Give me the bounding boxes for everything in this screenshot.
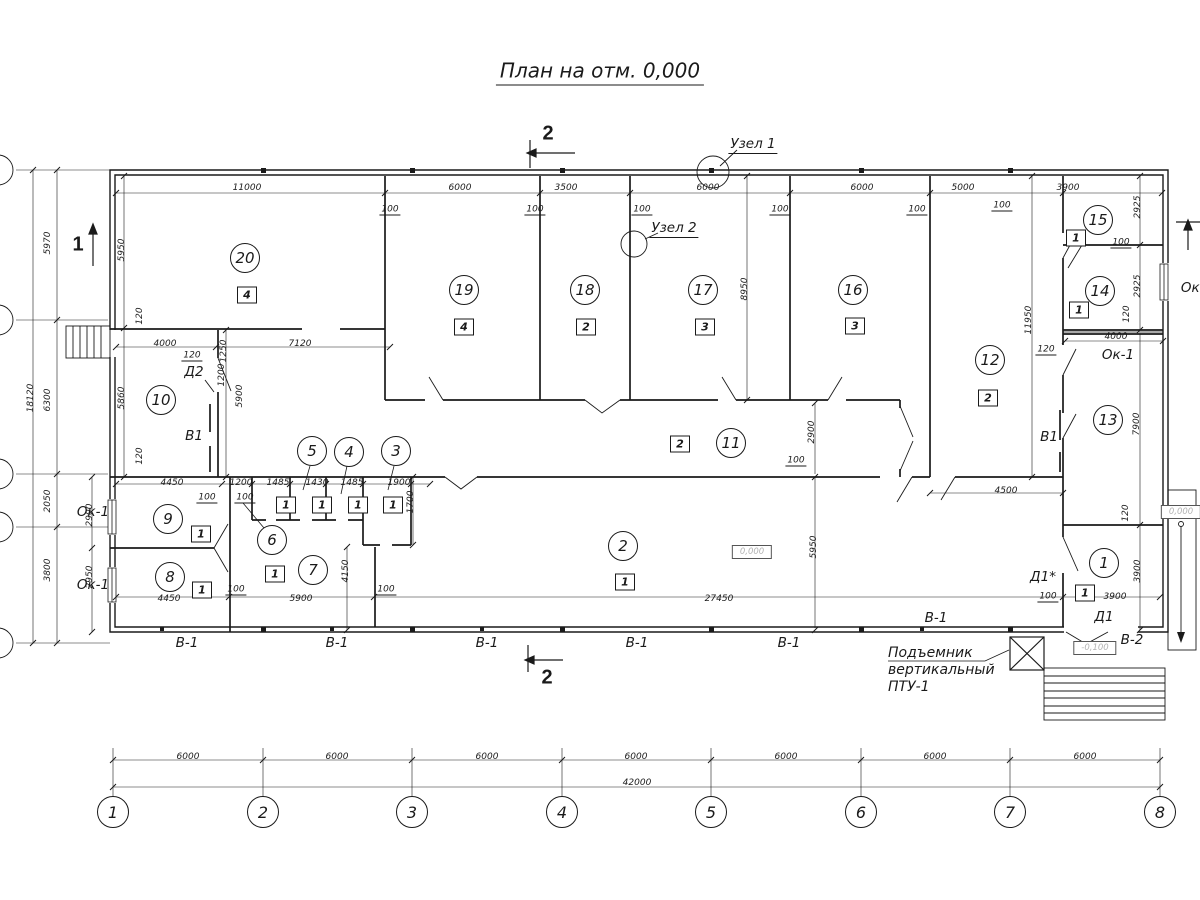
- window-label-ok1: Ок-1: [77, 504, 109, 520]
- dimension-label: 2925: [1133, 196, 1143, 219]
- axis-bubble-6: 6: [845, 796, 877, 828]
- room-type-tag: 1: [276, 497, 296, 514]
- dimension-label: 120: [1121, 504, 1131, 521]
- dimension-label: 2925: [1133, 275, 1143, 298]
- dimension-label: 3900: [1057, 183, 1080, 193]
- dimension-label: 6000: [177, 752, 200, 762]
- room-number-11: 11: [716, 428, 746, 458]
- elevation-mark: 0,000: [732, 545, 772, 559]
- dimension-label: 100: [785, 456, 806, 467]
- dimension-label: 120: [1122, 305, 1132, 322]
- dimension-label: 120: [181, 351, 202, 362]
- dimension-label: 100: [991, 201, 1012, 212]
- section-mark-label: 1: [72, 234, 83, 257]
- window-label-ok1: Ок-1: [1181, 280, 1200, 296]
- axis-bubble-1: 1: [97, 796, 129, 828]
- elevation-mark: 0,000: [1161, 505, 1200, 519]
- dimension-label: 2050: [43, 490, 53, 513]
- room-type-tag: 1: [191, 526, 211, 543]
- room-type-tag: 1: [383, 497, 403, 514]
- dimension-label: 11950: [1024, 306, 1034, 335]
- dimension-label: 6000: [924, 752, 947, 762]
- room-number-12: 12: [975, 345, 1005, 375]
- axis-bubble-7: 7: [994, 796, 1026, 828]
- dimension-label: 11000: [233, 183, 262, 193]
- dimension-label: 5900: [235, 385, 245, 408]
- dimension-label: 100: [524, 205, 545, 216]
- dimension-label: 1700: [406, 491, 416, 514]
- room-type-tag: 4: [237, 287, 257, 304]
- room-type-tag: 1: [265, 566, 285, 583]
- room-number-4: 4: [334, 437, 364, 467]
- dimension-label: 5000: [952, 183, 975, 193]
- axis-bubble-8: 8: [1144, 796, 1176, 828]
- dimension-label: 6000: [697, 183, 720, 193]
- lift-note: Подъемник вертикальный ПТУ-1: [888, 645, 995, 696]
- panel-label-v1: В-1: [925, 610, 948, 626]
- dimension-label: 2900: [807, 421, 817, 444]
- dimension-label: 100: [1110, 238, 1131, 249]
- room-type-tag: 4: [454, 319, 474, 336]
- door-label-d2: Д2: [184, 364, 203, 380]
- dimension-label: 6000: [326, 752, 349, 762]
- room-number-1: 1: [1089, 548, 1119, 578]
- axis-bubble-5: 5: [695, 796, 727, 828]
- panel-label-v1: В-1: [176, 635, 199, 651]
- room-type-tag: 1: [615, 574, 635, 591]
- window-label-ok1: Ок-1: [77, 577, 109, 593]
- room-number-19: 19: [449, 275, 479, 305]
- room-number-7: 7: [298, 555, 328, 585]
- dimension-label: 5950: [809, 536, 819, 559]
- axis-bubble-4: 4: [546, 796, 578, 828]
- room-number-14: 14: [1085, 276, 1115, 306]
- room-number-18: 18: [570, 275, 600, 305]
- dimension-label: 6000: [476, 752, 499, 762]
- dimension-label: 1900: [388, 478, 411, 488]
- room-type-tag: 1: [348, 497, 368, 514]
- room-type-tag: 2: [978, 390, 998, 407]
- dimension-label: 120: [1035, 345, 1056, 356]
- room-type-tag: 1: [1069, 302, 1089, 319]
- dimension-label: 5860: [117, 387, 127, 410]
- dimension-label: 7900: [1132, 413, 1142, 436]
- dimension-label: 1250: [219, 340, 229, 363]
- dimension-label: 4450: [161, 478, 184, 488]
- lift-note-line: ПТУ-1: [888, 679, 995, 696]
- panel-label-v1: В-1: [626, 635, 649, 651]
- room-number-6: 6: [257, 525, 287, 555]
- dimension-label: 6000: [625, 752, 648, 762]
- labels-layer: 1100060003500600060005000390010010010010…: [0, 0, 1200, 900]
- floor-plan-sheet: План на отм. 0,000 110006000350060006000…: [0, 0, 1200, 900]
- node-callout-1: Узел 1: [728, 136, 777, 154]
- window-label-ok1: Ок-1: [1102, 347, 1134, 363]
- dimension-label: 100: [196, 493, 217, 504]
- room-type-tag: 3: [695, 319, 715, 336]
- dimension-label: 5970: [43, 232, 53, 255]
- dimension-label: 4450: [158, 594, 181, 604]
- dimension-label: 4500: [995, 486, 1018, 496]
- dimension-label: 3900: [1104, 592, 1127, 602]
- dimension-label: 6000: [449, 183, 472, 193]
- room-number-9: 9: [153, 504, 183, 534]
- dimension-label: 100: [769, 205, 790, 216]
- dimension-label: 3500: [555, 183, 578, 193]
- axis-bubble-2: 2: [247, 796, 279, 828]
- lift-note-line: вертикальный: [888, 662, 995, 679]
- dimension-label: 4150: [341, 560, 351, 583]
- dimension-label: 3800: [43, 559, 53, 582]
- room-type-tag: 2: [670, 436, 690, 453]
- room-number-15: 15: [1083, 205, 1113, 235]
- panel-label-v2: В-2: [1121, 632, 1144, 648]
- dimension-label: 27450: [705, 594, 734, 604]
- room-number-13: 13: [1093, 405, 1123, 435]
- dimension-label: 4000: [1105, 332, 1128, 342]
- room-number-5: 5: [297, 436, 327, 466]
- panel-label-v1: В-1: [778, 635, 801, 651]
- dimension-label: 42000: [623, 778, 652, 788]
- room-type-tag: 2: [576, 319, 596, 336]
- section-mark-label: 2: [541, 667, 552, 690]
- lift-note-line: Подъемник: [888, 645, 995, 662]
- dimension-label: 5900: [290, 594, 313, 604]
- dimension-label: 1200: [217, 364, 227, 387]
- dimension-label: 6000: [775, 752, 798, 762]
- elevation-mark: -0,100: [1073, 641, 1116, 655]
- dimension-label: 6000: [851, 183, 874, 193]
- vent-label-v1-left: В1: [185, 428, 203, 444]
- dimension-label: 100: [379, 205, 400, 216]
- dimension-label: 100: [906, 205, 927, 216]
- dimension-label: 1485: [267, 478, 290, 488]
- dimension-label: 100: [234, 493, 255, 504]
- room-number-20: 20: [230, 243, 260, 273]
- axis-bubble-3: 3: [396, 796, 428, 828]
- dimension-label: 18120: [26, 384, 36, 413]
- dimension-label: 6000: [1074, 752, 1097, 762]
- node-callout-2: Узел 2: [649, 220, 698, 238]
- dimension-label: 3900: [1133, 560, 1143, 583]
- dimension-label: 6300: [43, 389, 53, 412]
- dimension-label: 1200: [230, 478, 253, 488]
- room-type-tag: 1: [312, 497, 332, 514]
- room-number-3: 3: [381, 436, 411, 466]
- section-mark-label: 2: [542, 123, 553, 146]
- dimension-label: 120: [135, 307, 145, 324]
- dimension-label: 100: [225, 585, 246, 596]
- vent-label-v1-right: В1: [1040, 429, 1058, 445]
- room-type-tag: 1: [192, 582, 212, 599]
- panel-label-v1: В-1: [326, 635, 349, 651]
- dimension-label: 4000: [154, 339, 177, 349]
- room-number-17: 17: [688, 275, 718, 305]
- room-number-16: 16: [838, 275, 868, 305]
- dimension-label: 7120: [289, 339, 312, 349]
- dimension-label: 1485: [341, 478, 364, 488]
- room-number-8: 8: [155, 562, 185, 592]
- dimension-label: 8950: [740, 278, 750, 301]
- dimension-label: 100: [375, 585, 396, 596]
- room-number-10: 10: [146, 385, 176, 415]
- room-type-tag: 1: [1066, 230, 1086, 247]
- room-number-2: 2: [608, 531, 638, 561]
- room-type-tag: 1: [1075, 585, 1095, 602]
- dimension-label: 120: [135, 447, 145, 464]
- door-label-d1-star: Д1*: [1030, 569, 1056, 585]
- door-label-d1: Д1: [1094, 609, 1113, 625]
- dimension-label: 100: [1037, 592, 1058, 603]
- room-type-tag: 3: [845, 318, 865, 335]
- dimension-label: 1430: [306, 478, 329, 488]
- panel-label-v1: В-1: [476, 635, 499, 651]
- dimension-label: 100: [631, 205, 652, 216]
- dimension-label: 5950: [117, 239, 127, 262]
